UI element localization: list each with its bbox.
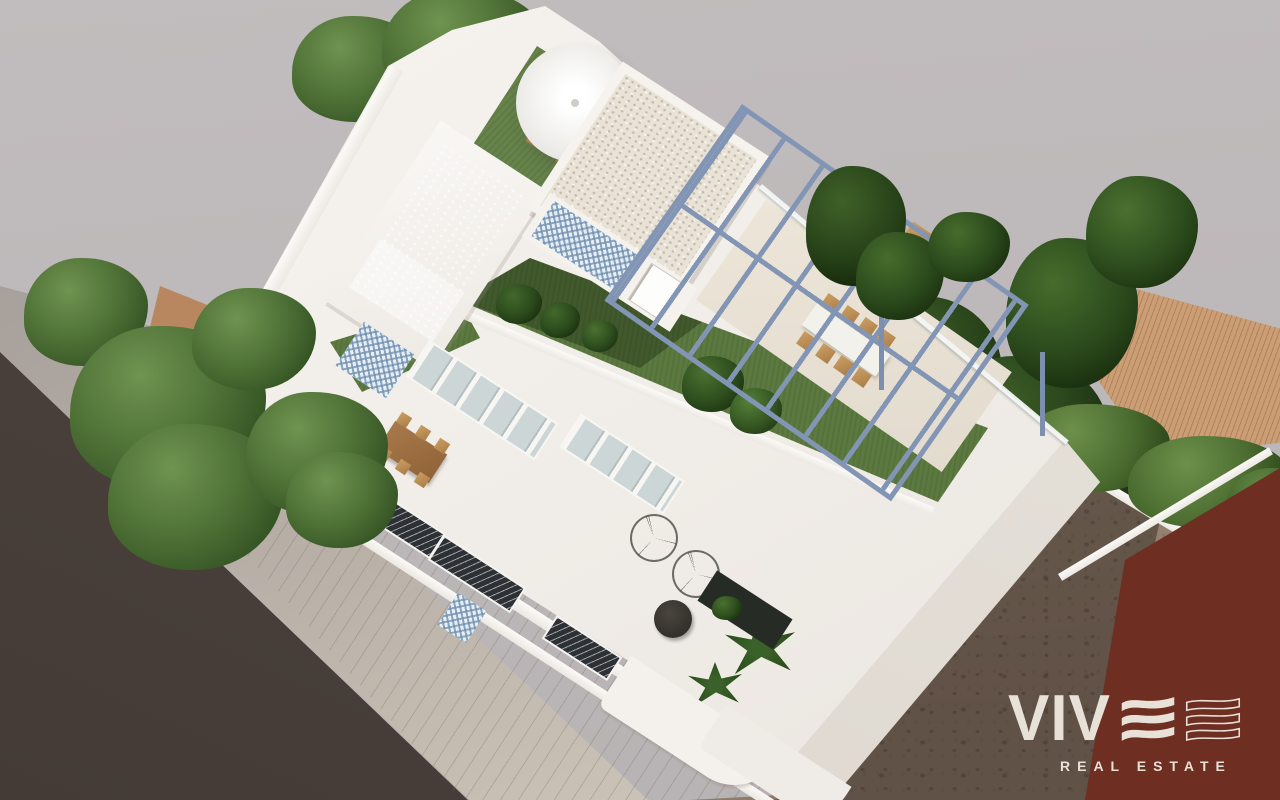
wave-e-icon [1120,691,1176,747]
watermark-brand-row: VIV [1008,688,1241,750]
umbrella-finial [571,99,579,107]
render-canvas: VIV REAL ESTATE [0,0,1280,800]
wave-e-outline-icon [1185,691,1241,747]
mosaic-accent-wall [437,593,486,643]
watermark: VIV REAL ESTATE [1008,688,1241,774]
pergola-post [1040,352,1045,436]
wire-chair [630,514,678,562]
brand-text: VIV [1008,686,1111,751]
coffee-table [654,600,692,638]
brand-tagline: REAL ESTATE [1060,758,1241,774]
